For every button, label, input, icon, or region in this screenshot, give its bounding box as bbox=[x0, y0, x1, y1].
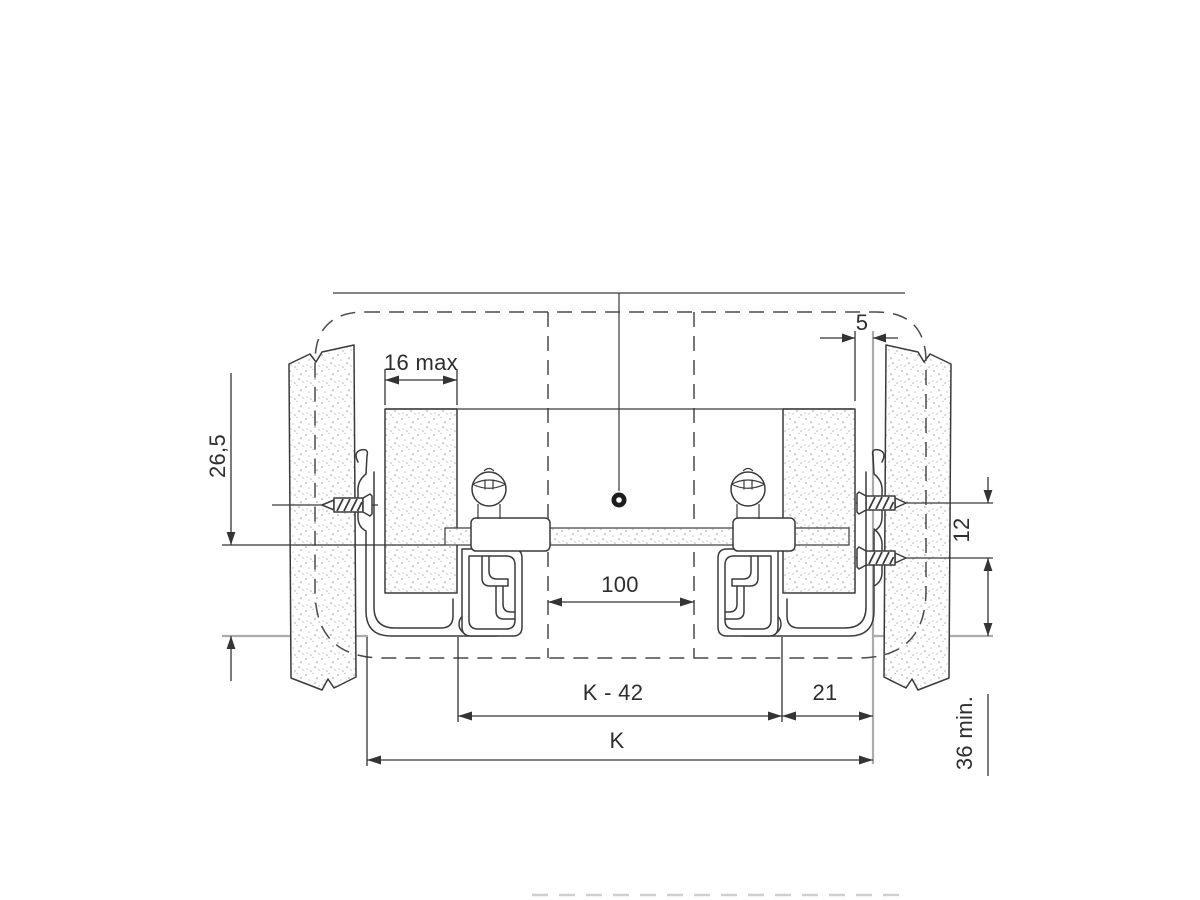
dim-label-26-5: 26,5 bbox=[205, 434, 230, 478]
cam-plate-right bbox=[733, 518, 795, 551]
cam-plate-left bbox=[471, 518, 550, 551]
drawer-side-board bbox=[385, 409, 457, 593]
dimension-center-hole-pitch: 100 bbox=[548, 572, 694, 607]
technical-diagram-page: 16 max 5 26,5 100 K - 42 21 bbox=[0, 0, 1200, 900]
dim-label-k-42: K - 42 bbox=[583, 680, 644, 705]
dim-label-12: 12 bbox=[949, 517, 974, 542]
dim-label-36-min: 36 min. bbox=[952, 696, 977, 770]
cam-left bbox=[472, 469, 506, 520]
dim-label-21: 21 bbox=[812, 680, 837, 705]
drawer-rail-profile-outer bbox=[462, 549, 522, 636]
dim-label-16-max: 16 max bbox=[384, 350, 458, 375]
dimension-inner-width-and-offset: K - 42 21 bbox=[458, 637, 873, 722]
dimension-drawer-side-thickness: 16 max bbox=[384, 350, 458, 405]
dim-label-5: 5 bbox=[856, 310, 869, 335]
cam-right bbox=[731, 469, 765, 520]
cabinet-side-panel bbox=[289, 345, 356, 690]
center-hole-mark-core bbox=[616, 497, 622, 503]
dim-label-k: K bbox=[610, 728, 625, 753]
drawer-runner-diagram: 16 max 5 26,5 100 K - 42 21 bbox=[0, 0, 1200, 900]
dimension-screw-pitch-and-min-clearance: 12 36 min. bbox=[949, 477, 992, 776]
dim-label-100: 100 bbox=[601, 572, 639, 597]
